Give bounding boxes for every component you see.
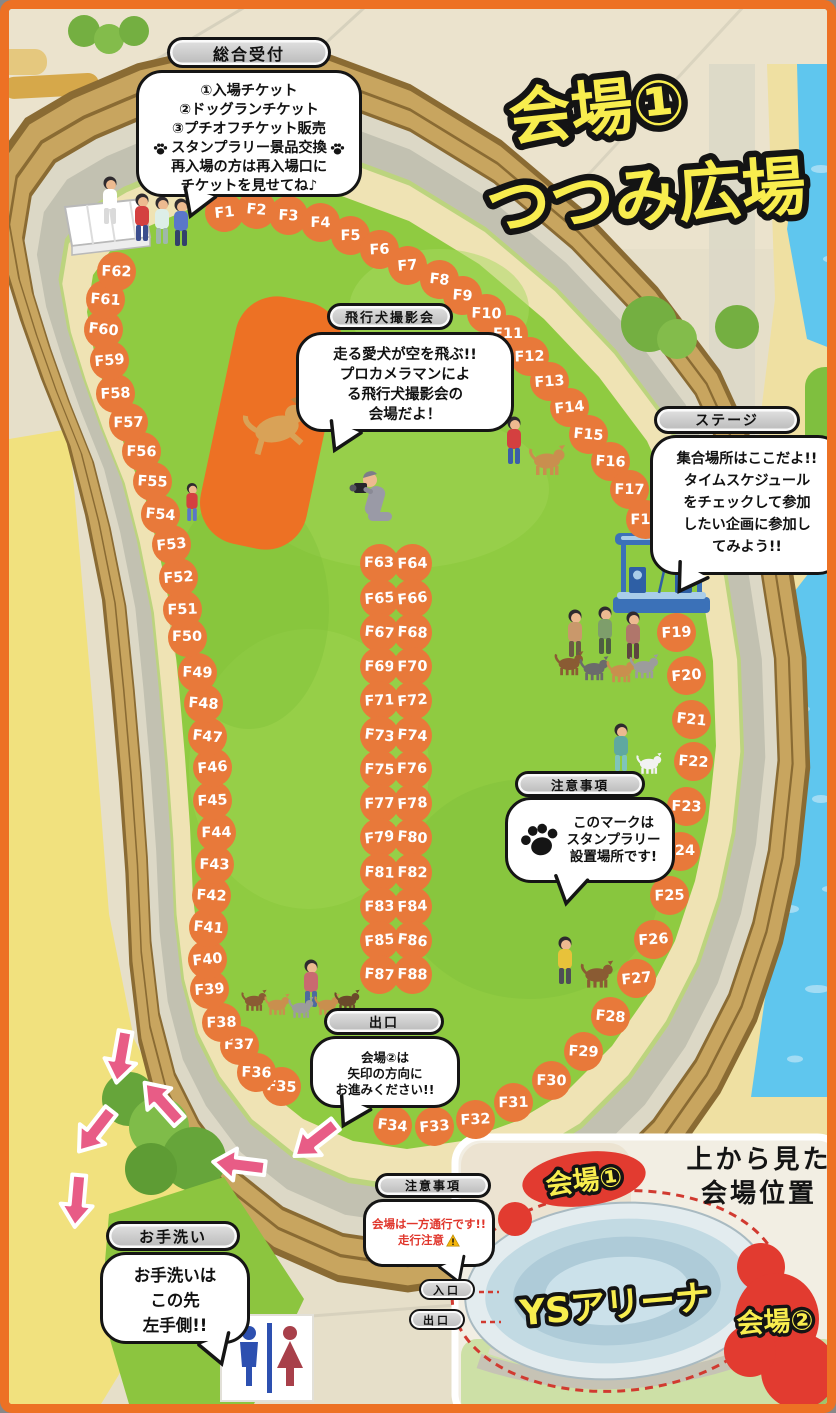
booth-marker: F28 — [589, 995, 631, 1037]
booth-marker: F79 — [358, 816, 401, 859]
reception-line: スタンプラリー景品交換 — [171, 139, 327, 158]
one-way-line: 会場は一方通行です!! — [366, 1216, 492, 1232]
stamp-rally-line: このマークは — [566, 815, 660, 832]
route-arrows — [59, 1029, 346, 1229]
booth-marker: F7 — [386, 244, 428, 286]
stage-line: 集合場所はここだよ!! — [653, 448, 836, 470]
booth-marker: F6 — [359, 229, 400, 270]
booth-marker: F45 — [192, 780, 233, 821]
flying-dog-bubble: 走る愛犬が空を飛ぶ!! プロカメラマンによ る飛行犬撮影会の 会場だよ！ — [296, 332, 514, 432]
stage-line: をチェックして参加 — [653, 492, 836, 514]
stage-line: したい企画に参加し — [653, 514, 836, 536]
booth-marker: F48 — [182, 682, 224, 724]
inset-entrance-pill: 入口 — [419, 1279, 475, 1300]
one-way-label: 注意事項 — [375, 1173, 491, 1198]
exit-line: お進みください!! — [313, 1082, 457, 1098]
booth-marker: F86 — [391, 919, 434, 962]
booth-marker: F53 — [150, 523, 193, 566]
booth-marker: F36 — [236, 1052, 276, 1092]
booth-marker: F3 — [268, 195, 309, 236]
booth-marker: F35 — [260, 1065, 302, 1107]
booth-marker: F61 — [84, 278, 126, 320]
booth-marker: F14 — [548, 386, 591, 429]
inset-arena-label: YSアリーナ — [517, 1278, 711, 1335]
flying-dog-label: 飛行犬撮影会 — [327, 303, 453, 330]
booth-marker: F5 — [330, 215, 370, 255]
booth-marker: F59 — [88, 339, 130, 381]
booth-marker: F41 — [187, 906, 229, 948]
flying-dog-line: る飛行犬撮影会の — [299, 385, 511, 405]
photographer-illustration — [350, 471, 393, 521]
booth-marker: F31 — [493, 1082, 533, 1122]
booth-marker: F44 — [196, 812, 236, 852]
booth-marker: F60 — [82, 308, 125, 351]
booth-marker: F10 — [466, 293, 506, 333]
booth-marker: F54 — [139, 493, 181, 535]
booth-marker: F83 — [359, 886, 399, 926]
booth-marker: F82 — [392, 852, 432, 892]
booth-marker: F69 — [359, 646, 399, 686]
paw-icon — [330, 142, 345, 156]
stamp-rally-label: 注意事項 — [515, 771, 645, 797]
water-top — [787, 64, 836, 354]
booth-marker: F27 — [615, 957, 658, 1000]
booth-marker: F51 — [162, 589, 202, 629]
booth-marker: F20 — [665, 654, 707, 696]
booth-marker: F88 — [392, 954, 432, 994]
venue2-area — [724, 1243, 836, 1409]
reception-line: ①入場チケット — [139, 82, 359, 101]
water-speckles — [779, 165, 836, 1063]
booth-marker: F55 — [132, 461, 173, 502]
reception-line: ②ドッグランチケット — [139, 101, 359, 120]
flying-dog-line: プロカメラマンによ — [299, 365, 511, 385]
booth-marker: F22 — [672, 740, 714, 782]
reception-line: 再入場の方は再入場口に — [139, 158, 359, 177]
ochre-stroke — [9, 72, 100, 99]
bubble-tail — [327, 1093, 373, 1137]
booth-marker: F70 — [392, 646, 432, 686]
event-map-poster: F1F2F3F4F5F6F7F8F9F10F11F12F13F14F15F16F… — [0, 0, 836, 1413]
booth-marker: F39 — [188, 968, 230, 1010]
booth-marker: F26 — [632, 918, 674, 960]
exit-bubble: 会場②は 矢印の方向に お進みください!! — [310, 1036, 460, 1108]
booth-marker: F13 — [528, 360, 570, 402]
booth-marker: F50 — [168, 618, 207, 657]
title-line2: つつみ広場 — [484, 150, 808, 246]
booth-marker: F81 — [359, 852, 400, 893]
booth-marker: F40 — [186, 938, 229, 981]
booth-marker: F17 — [609, 469, 649, 509]
one-way-line: 走行注意 — [398, 1232, 444, 1248]
exit-line: 会場②は — [313, 1050, 457, 1066]
stage-bubble: 集合場所はここだよ!! タイムスケジュール をチェックして参加 したい企画に参加… — [650, 435, 836, 575]
title-line1: 会場① — [505, 64, 688, 155]
venue1-area — [498, 1145, 649, 1236]
stamp-rally-bubble: このマークは スタンプラリー 設置場所です! — [505, 797, 675, 883]
stamp-rally-line: 設置場所です! — [566, 849, 660, 866]
reception-bubble: ①入場チケット ②ドッグランチケット ③プチオフチケット販売 スタンプラリー景品… — [136, 70, 362, 197]
inset-exit-pill: 出口 — [409, 1309, 465, 1330]
booth-marker: F8 — [418, 258, 461, 301]
water-right — [751, 565, 836, 1097]
booth-marker: F80 — [391, 816, 433, 858]
booth-marker: F72 — [391, 679, 433, 721]
bubble-tail — [550, 873, 590, 910]
booth-marker: F65 — [358, 577, 400, 619]
booth-marker: F52 — [157, 556, 199, 598]
warning-icon — [446, 1234, 460, 1247]
booth-marker: F66 — [391, 577, 434, 620]
paw-icon — [153, 142, 168, 156]
arena-building — [459, 1193, 775, 1390]
booth-marker: F77 — [359, 783, 399, 823]
booth-marker: F57 — [108, 402, 148, 442]
booth-marker: F49 — [177, 652, 217, 692]
exit-line: 矢印の方向に — [313, 1066, 457, 1082]
restroom-label: お手洗い — [106, 1221, 240, 1251]
booth-marker: F37 — [220, 1026, 259, 1065]
booth-marker: F87 — [358, 953, 400, 995]
stage-label: ステージ — [654, 406, 800, 434]
booth-marker: F85 — [358, 919, 400, 961]
bubble-tail — [663, 559, 710, 605]
restroom-bubble: お手洗いは この先 左手側!! — [100, 1252, 250, 1344]
booth-marker: F46 — [191, 746, 233, 788]
booth-marker: F34 — [371, 1104, 414, 1147]
booth-marker: F78 — [391, 782, 433, 824]
booth-marker: F30 — [531, 1060, 571, 1100]
stage-line: タイムスケジュール — [653, 470, 836, 492]
booth-marker: F62 — [96, 251, 136, 291]
inset-heading-line: 上から見た — [673, 1143, 836, 1177]
booth-marker: F47 — [186, 715, 229, 758]
reception-line: ③プチオフチケット販売 — [139, 120, 359, 139]
stage-line: てみよう!! — [653, 536, 836, 558]
booth-marker: F74 — [391, 714, 433, 756]
booth-marker: F33 — [413, 1105, 455, 1147]
restroom-line: この先 — [103, 1288, 247, 1313]
booth-marker: F73 — [358, 714, 401, 757]
booth-marker: F67 — [358, 611, 400, 653]
booth-marker: F29 — [563, 1031, 604, 1072]
paw-icon — [515, 816, 565, 865]
booth-marker: F84 — [392, 886, 433, 927]
reception-desk-illustration — [65, 199, 150, 255]
inset-venue2-label: 会場② — [736, 1305, 814, 1340]
booth-marker: F76 — [393, 750, 432, 789]
booth-marker: F68 — [392, 612, 433, 653]
booth-marker: F12 — [509, 336, 549, 376]
sand-right — [649, 64, 836, 1139]
booth-marker: F19 — [656, 612, 697, 653]
booth-marker: F21 — [670, 698, 713, 741]
booth-marker: F56 — [121, 431, 161, 471]
flying-dog-line: 走る愛犬が空を飛ぶ!! — [299, 345, 511, 365]
reception-label: 総合受付 — [167, 37, 331, 68]
booth-marker: F38 — [201, 1002, 241, 1042]
restroom-line: お手洗いは — [103, 1263, 247, 1288]
inset-venue1-label: 会場① — [544, 1161, 624, 1201]
booth-marker: F71 — [359, 680, 400, 721]
exit-label: 出口 — [324, 1008, 444, 1035]
booth-marker: F42 — [191, 875, 232, 916]
booth-marker: F63 — [360, 544, 399, 583]
stamp-rally-line: スタンプラリー — [566, 832, 660, 849]
booth-marker: F58 — [95, 373, 136, 414]
booth-marker: F32 — [455, 1099, 496, 1140]
booth-marker: F16 — [590, 441, 631, 482]
booth-marker: F4 — [300, 202, 340, 242]
inset-heading: 上から見た 会場位置 — [673, 1143, 836, 1211]
booth-marker: F15 — [567, 413, 609, 455]
booth-marker: F64 — [392, 543, 432, 583]
one-way-route-ring — [445, 1180, 788, 1403]
booth-marker: F75 — [359, 749, 399, 789]
one-way-bubble: 会場は一方通行です!! 走行注意 — [363, 1199, 495, 1267]
inset-heading-line: 会場位置 — [673, 1177, 836, 1211]
booth-marker: F43 — [194, 844, 234, 884]
reception-line: チケットを見せてね♪ — [139, 177, 359, 196]
